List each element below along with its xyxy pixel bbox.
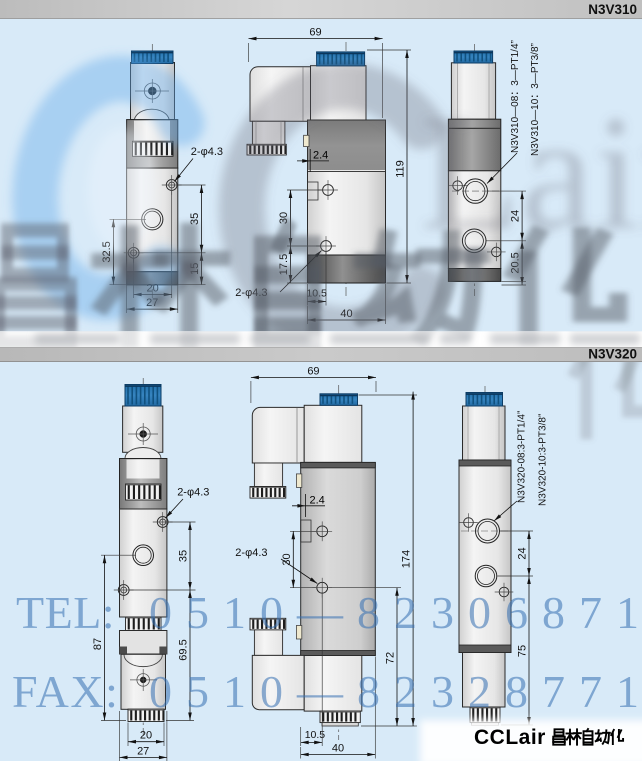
svg-text:2-φ4.3: 2-φ4.3 xyxy=(235,547,267,559)
svg-text:2.4: 2.4 xyxy=(310,495,325,507)
svg-text:87: 87 xyxy=(92,638,104,650)
svg-text:75: 75 xyxy=(517,645,529,657)
svg-text:24: 24 xyxy=(517,547,529,559)
svg-text:N3V310: N3V310 xyxy=(588,2,637,17)
svg-text:20: 20 xyxy=(140,730,152,742)
svg-text:TEL:: TEL: xyxy=(16,587,115,638)
svg-text:0510—82306871: 0510—82306871 xyxy=(149,587,642,638)
svg-text:30: 30 xyxy=(281,553,293,565)
svg-text:69: 69 xyxy=(309,27,321,39)
svg-text:N3V320: N3V320 xyxy=(588,347,637,362)
svg-text:2-φ4.3: 2-φ4.3 xyxy=(177,487,209,499)
svg-text:2.4: 2.4 xyxy=(313,150,328,162)
svg-text:CCLair: CCLair xyxy=(474,726,546,749)
svg-text:69: 69 xyxy=(307,365,319,377)
svg-text:40: 40 xyxy=(332,743,344,755)
svg-text:N3V320-10:3-PT3/8”: N3V320-10:3-PT3/8” xyxy=(538,414,549,506)
svg-text:N3V320-08:3-PT1/4”: N3V320-08:3-PT1/4” xyxy=(517,411,528,503)
svg-text:2-φ4.3: 2-φ4.3 xyxy=(191,146,223,158)
svg-text:72: 72 xyxy=(385,652,397,664)
svg-text:174: 174 xyxy=(401,550,413,568)
svg-text:0510—82328771: 0510—82328771 xyxy=(149,666,642,717)
svg-text:27: 27 xyxy=(137,745,149,757)
svg-text:69.5: 69.5 xyxy=(178,639,190,660)
svg-text:119: 119 xyxy=(395,160,407,178)
svg-text:35: 35 xyxy=(178,550,190,562)
svg-text:FAX:: FAX: xyxy=(12,666,119,717)
